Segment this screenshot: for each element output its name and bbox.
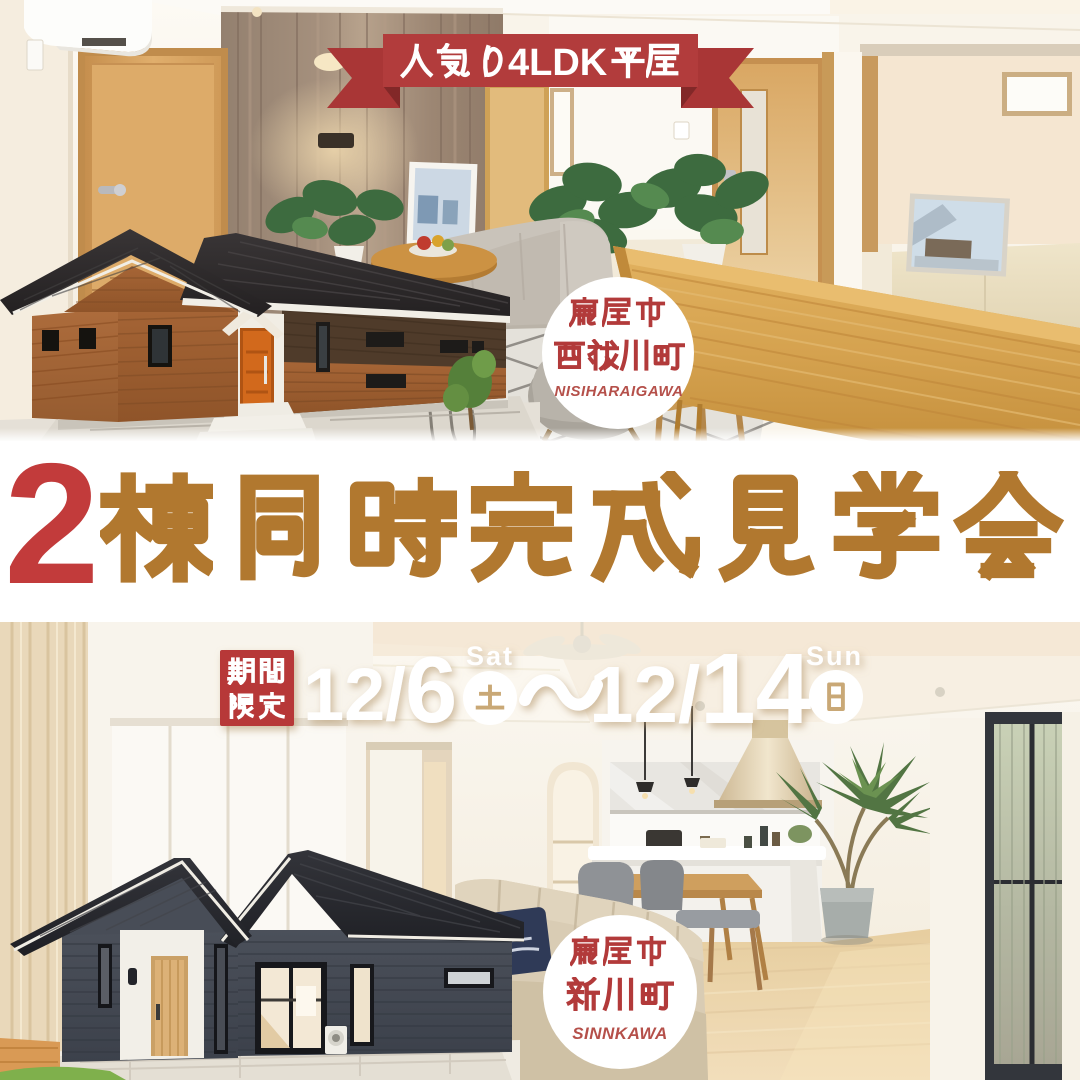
svg-text:Sat: Sat (466, 641, 514, 671)
svg-text:6: 6 (405, 637, 457, 740)
svg-text:4LDK: 4LDK (508, 42, 608, 84)
svg-text:12/: 12/ (303, 653, 406, 736)
svg-text:Sun: Sun (806, 641, 863, 671)
svg-text:12/: 12/ (589, 650, 700, 739)
svg-text:14: 14 (700, 633, 812, 740)
svg-text:SINNKAWA: SINNKAWA (572, 1024, 668, 1043)
svg-text:2: 2 (4, 441, 100, 620)
svg-text:NISIHARAIGAWA: NISIHARAIGAWA (554, 383, 683, 400)
